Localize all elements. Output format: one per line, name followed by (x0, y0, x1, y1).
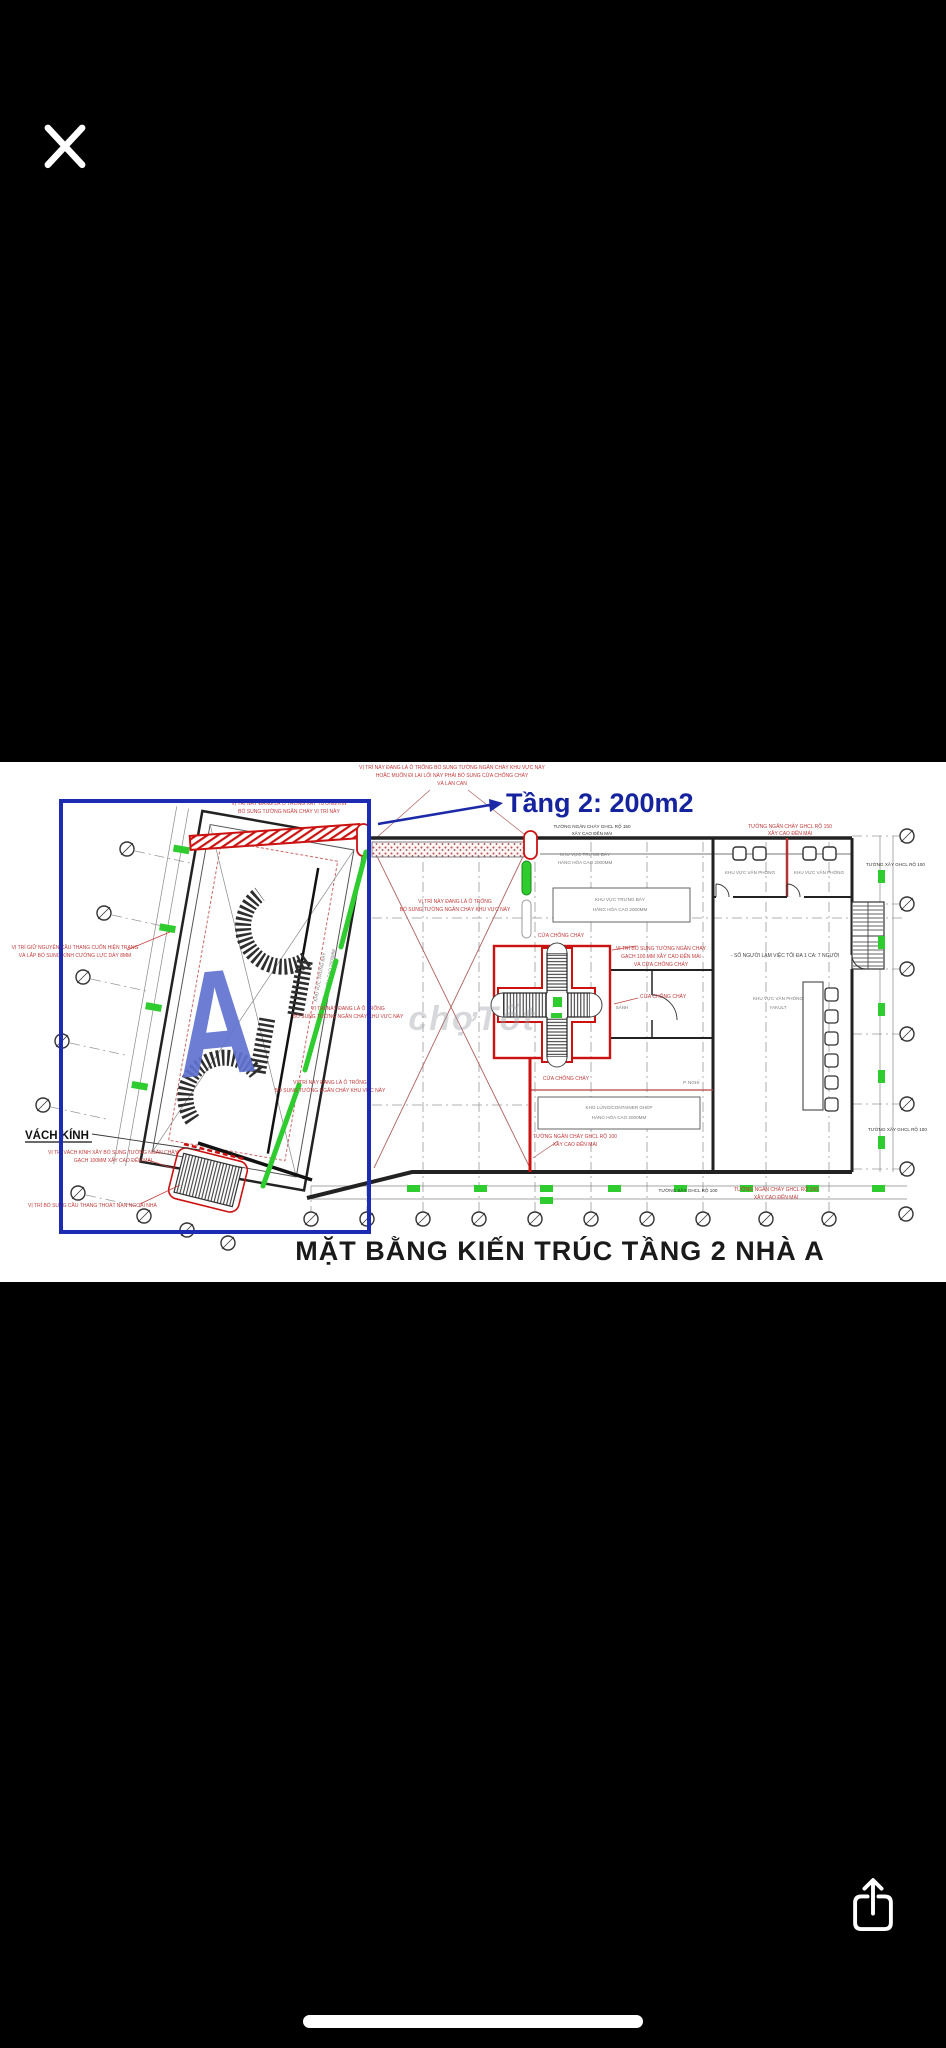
plan-title: MẶT BẰNG KIẾN TRÚC TẦNG 2 NHÀ A (295, 1235, 825, 1266)
share-button[interactable] (838, 1862, 908, 1948)
office-label-1: KHU VỰC VĂN PHÒNG (725, 869, 776, 875)
storage-box (538, 1097, 700, 1129)
area-annotation: Tầng 2: 200m2 (506, 788, 694, 818)
svg-text:VÀ LẮP BỔ SUNG KÍNH CƯỜNG LỰC: VÀ LẮP BỔ SUNG KÍNH CƯỜNG LỰC DÀY 8MM (19, 951, 131, 959)
svg-text:XÂY CAO ĐẾN MÁI: XÂY CAO ĐẾN MÁI (768, 830, 812, 837)
fire-wall-150-label: TƯỜNG NGĂN CHÁY GHCL RỘ 150 (553, 823, 630, 829)
close-button[interactable] (38, 116, 92, 174)
svg-text:HÀNG HÓA CAO 2000MM: HÀNG HÓA CAO 2000MM (593, 906, 648, 912)
staff-count-label: - SỐ NGƯỜI LÀM VIỆC TỐI ĐA 1 CA: 7 NGƯỜI (731, 951, 839, 959)
fire-door-label-bottom: CỬA CHỐNG CHÁY (543, 1075, 590, 1082)
svg-text:VÀ CỬA CHỐNG CHÁY: VÀ CỬA CHỐNG CHÁY (634, 961, 689, 968)
fire-wall-band-open (372, 842, 524, 857)
svg-text:BỔ SUNG TƯỜNG NGĂN CHÁY KHU VỰ: BỔ SUNG TƯỜNG NGĂN CHÁY KHU VỰC NÀY (293, 1013, 404, 1020)
svg-text:BỔ SUNG TƯỜNG NGĂN CHÁY VỊ TRÍ: BỔ SUNG TƯỜNG NGĂN CHÁY VỊ TRÍ NÀY (238, 808, 340, 815)
fire-door-label-top: CỬA CHỐNG CHÁY (538, 932, 585, 939)
note-void-3: VỊ TRÍ NÀY ĐANG LÀ Ô TRỐNG (293, 1079, 367, 1086)
watermark: chợTốt (408, 1000, 535, 1038)
svg-text:BỔ SUNG TƯỜNG NGĂN CHÁY KHU VỰ: BỔ SUNG TƯỜNG NGĂN CHÁY KHU VỰC NÀY (400, 906, 511, 913)
note-top: VỊ TRÍ NÀY ĐANG LÀ Ô TRỐNG BỔ SUNG TƯỜNG… (359, 764, 545, 771)
rest-room-label: P. NGHỈ (683, 1079, 700, 1085)
display-box (553, 888, 690, 922)
note-void-2: VỊ TRÍ NÀY ĐANG LÀ Ô TRỐNG (311, 1005, 385, 1012)
wall-100-label-top: TƯỜNG XÂY GHCL RỘ 100 (866, 861, 925, 867)
floor-plan-drawing: KHU VỰC TRƯNG BÀY HÀNG HÓA CAO 2000MM (0, 762, 946, 1282)
svg-text:KHU VỰC TRƯNG BÀY: KHU VỰC TRƯNG BÀY (595, 896, 645, 902)
lobby-label: SẢNH (616, 1004, 629, 1010)
note-escape: VỊ TRÍ BỔ SUNG CẦU THANG THOÁT NẠN NGOÀI… (28, 1202, 157, 1209)
svg-text:YAKULT: YAKULT (769, 1005, 786, 1010)
note-glass: VỊ TRÍ VÁCH KÍNH XÂY BỔ SUNG TƯỜNG NGĂN … (48, 1149, 179, 1156)
display-area-label: KHU VỰC TRƯNG BÀY (560, 851, 610, 857)
svg-text:XÂY CAO ĐẾN MÁI: XÂY CAO ĐẾN MÁI (572, 830, 613, 836)
fire-wall-100-label-center: TƯỜNG NGĂN CHÁY GHCL RỘ 100 (533, 1133, 617, 1140)
wall-100-label-bottom: TƯỜNG XÂY GHCL RỘ 100 (659, 1187, 718, 1193)
svg-text:GẠCH 100MM XÂY CAO ĐẾN MÁI: GẠCH 100MM XÂY CAO ĐẾN MÁI (74, 1157, 152, 1164)
photo-viewer-image[interactable]: KHU VỰC TRƯNG BÀY HÀNG HÓA CAO 2000MM (0, 762, 946, 1282)
svg-text:HÀNG HÓA CAO 2000MM: HÀNG HÓA CAO 2000MM (592, 1114, 647, 1120)
share-icon (838, 1862, 908, 1948)
window (823, 847, 836, 860)
svg-text:XÂY CAO ĐẾN MÁI: XÂY CAO ĐẾN MÁI (553, 1141, 597, 1148)
glass-partition-label: VÁCH KÍNH (25, 1129, 89, 1142)
note-cross: VỊ TRÍ BỔ SUNG TƯỜNG NGĂN CHÁY (616, 945, 707, 952)
wing-letter-label: A (173, 935, 259, 1110)
home-indicator[interactable] (303, 2015, 643, 2028)
svg-text:XÂY CAO ĐẾN MÁI: XÂY CAO ĐẾN MÁI (754, 1194, 798, 1201)
note-keep-escalator: VỊ TRÍ GIỮ NGUYÊN CẦU THANG CUỐN HIỆN TR… (12, 943, 139, 951)
note-void-1: VỊ TRÍ NÀY ĐANG LÀ Ô TRỐNG (418, 898, 492, 905)
svg-text:VÀ LAN CAN: VÀ LAN CAN (437, 780, 467, 787)
stairwell (852, 902, 884, 969)
svg-text:HÀNG HÓA CAO 2000MM: HÀNG HÓA CAO 2000MM (558, 859, 613, 865)
office-label-2: KHU VỰC VĂN PHÒNG (794, 869, 845, 875)
fire-door-label-right: CỬA CHỐNG CHÁY (640, 993, 687, 1000)
close-icon (38, 116, 92, 174)
wall-100-label-right: TƯỜNG XÂY GHCL RỘ 100 (868, 1126, 927, 1132)
svg-text:HOẶC MUỐN ĐI LẠI LỐI NÀY PHẢI: HOẶC MUỐN ĐI LẠI LỐI NÀY PHẢI BỔ SUNG CỬ… (376, 772, 529, 779)
fire-wall-150-label-red: TƯỜNG NGĂN CHÁY GHCL RỘ 150 (748, 823, 832, 830)
window (733, 847, 746, 860)
window (803, 847, 816, 860)
storage-label: KHO LỬNG/CONTAINER GHÉP (586, 1104, 653, 1110)
window (753, 847, 766, 860)
phone-screen: KHU VỰC TRƯNG BÀY HÀNG HÓA CAO 2000MM (0, 0, 946, 2048)
fire-wall-100-label-bottom: TƯỜNG NGĂN CHÁY GHCL RỘ 100 (734, 1186, 818, 1193)
office-yakult-label: KHU VỰC VĂN PHÒNG (753, 995, 804, 1001)
svg-text:GẠCH 100 MM XÂY CAO ĐẾN MÁI: GẠCH 100 MM XÂY CAO ĐẾN MÁI (621, 953, 701, 960)
